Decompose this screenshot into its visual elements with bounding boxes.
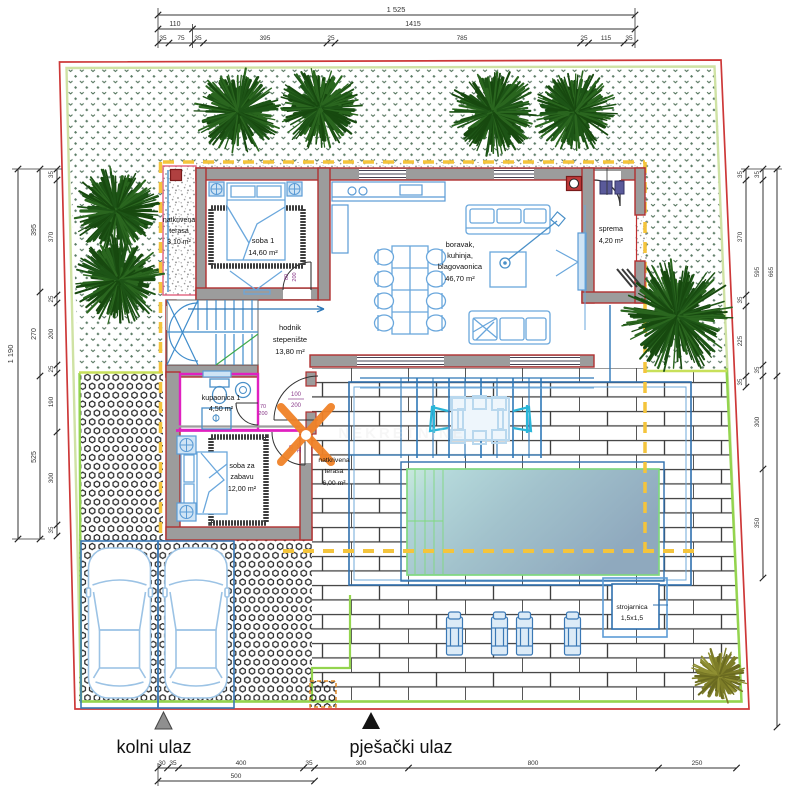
svg-text:200: 200 [48, 328, 55, 339]
svg-text:300: 300 [356, 760, 367, 767]
svg-text:270: 270 [31, 328, 38, 340]
svg-text:200: 200 [292, 272, 298, 281]
svg-text:13,80 m²: 13,80 m² [275, 347, 305, 356]
svg-text:800: 800 [528, 760, 539, 767]
svg-text:250: 250 [692, 760, 703, 767]
svg-text:200: 200 [291, 403, 302, 409]
svg-text:225: 225 [737, 335, 744, 346]
svg-text:395: 395 [31, 224, 38, 236]
svg-text:35: 35 [737, 296, 744, 303]
svg-text:25: 25 [327, 35, 335, 42]
svg-text:natkrivena: natkrivena [318, 457, 350, 464]
svg-text:785: 785 [457, 35, 468, 42]
svg-text:35: 35 [194, 35, 202, 42]
svg-text:75: 75 [177, 35, 185, 42]
svg-text:30: 30 [158, 760, 166, 767]
svg-text:1415: 1415 [405, 21, 421, 28]
svg-text:190: 190 [48, 396, 55, 407]
svg-text:370: 370 [48, 231, 55, 242]
svg-text:4,20 m²: 4,20 m² [599, 236, 624, 245]
svg-text:35: 35 [625, 35, 633, 42]
svg-text:boravak,: boravak, [446, 240, 475, 249]
svg-text:35: 35 [754, 171, 761, 178]
svg-text:35: 35 [159, 35, 167, 42]
svg-text:35: 35 [305, 760, 313, 767]
svg-text:NEKRETNINE: NEKRETNINE [338, 425, 466, 442]
svg-text:12,00 m²: 12,00 m² [228, 484, 257, 493]
svg-text:35: 35 [48, 526, 55, 533]
svg-text:200: 200 [258, 411, 267, 417]
svg-text:110: 110 [169, 21, 180, 28]
svg-text:14,60 m²: 14,60 m² [248, 248, 278, 257]
svg-text:terasa: terasa [325, 468, 344, 475]
svg-text:525: 525 [31, 451, 38, 463]
svg-text:115: 115 [601, 35, 612, 42]
svg-text:pješački ulaz: pješački ulaz [349, 737, 452, 757]
svg-text:hodnik: hodnik [279, 323, 301, 332]
svg-text:strojarnica: strojarnica [616, 604, 648, 611]
svg-text:kolni ulaz: kolni ulaz [116, 737, 191, 757]
svg-text:370: 370 [737, 231, 744, 242]
svg-text:35: 35 [169, 760, 177, 767]
svg-text:natkrivena: natkrivena [163, 217, 195, 224]
svg-text:100: 100 [291, 392, 302, 398]
svg-text:595: 595 [754, 266, 761, 277]
svg-text:3,10 m²: 3,10 m² [167, 239, 191, 246]
svg-text:sprema: sprema [599, 224, 623, 233]
svg-text:35: 35 [48, 171, 55, 178]
svg-text:kupaonica 1: kupaonica 1 [202, 393, 241, 402]
svg-text:25: 25 [48, 295, 55, 302]
svg-text:300: 300 [754, 416, 761, 427]
svg-text:46,70 m²: 46,70 m² [445, 274, 475, 283]
svg-text:terasa: terasa [169, 228, 189, 235]
svg-text:35: 35 [754, 366, 761, 373]
svg-text:6,00 m²: 6,00 m² [322, 480, 346, 487]
svg-text:1 525: 1 525 [387, 5, 406, 14]
svg-text:blagovaonica: blagovaonica [438, 262, 483, 271]
svg-text:35: 35 [737, 378, 744, 385]
svg-text:soba za: soba za [229, 461, 254, 470]
svg-text:kuhinja,: kuhinja, [447, 251, 473, 260]
svg-text:300: 300 [48, 472, 55, 483]
svg-text:25: 25 [48, 365, 55, 372]
svg-text:zabavu: zabavu [230, 472, 253, 481]
svg-text:25: 25 [580, 35, 588, 42]
svg-text:35: 35 [737, 171, 744, 178]
svg-text:stepenište: stepenište [273, 335, 307, 344]
svg-text:500: 500 [231, 773, 242, 780]
svg-text:1 190: 1 190 [6, 345, 15, 364]
svg-text:400: 400 [236, 760, 247, 767]
svg-text:395: 395 [260, 35, 271, 42]
svg-text:4,50 m²: 4,50 m² [209, 404, 234, 413]
svg-text:350: 350 [754, 517, 761, 528]
svg-text:665: 665 [768, 266, 775, 277]
svg-text:1,5x1,5: 1,5x1,5 [621, 615, 644, 622]
svg-text:80: 80 [284, 274, 290, 280]
svg-text:70: 70 [260, 404, 266, 410]
svg-text:soba 1: soba 1 [252, 236, 275, 245]
